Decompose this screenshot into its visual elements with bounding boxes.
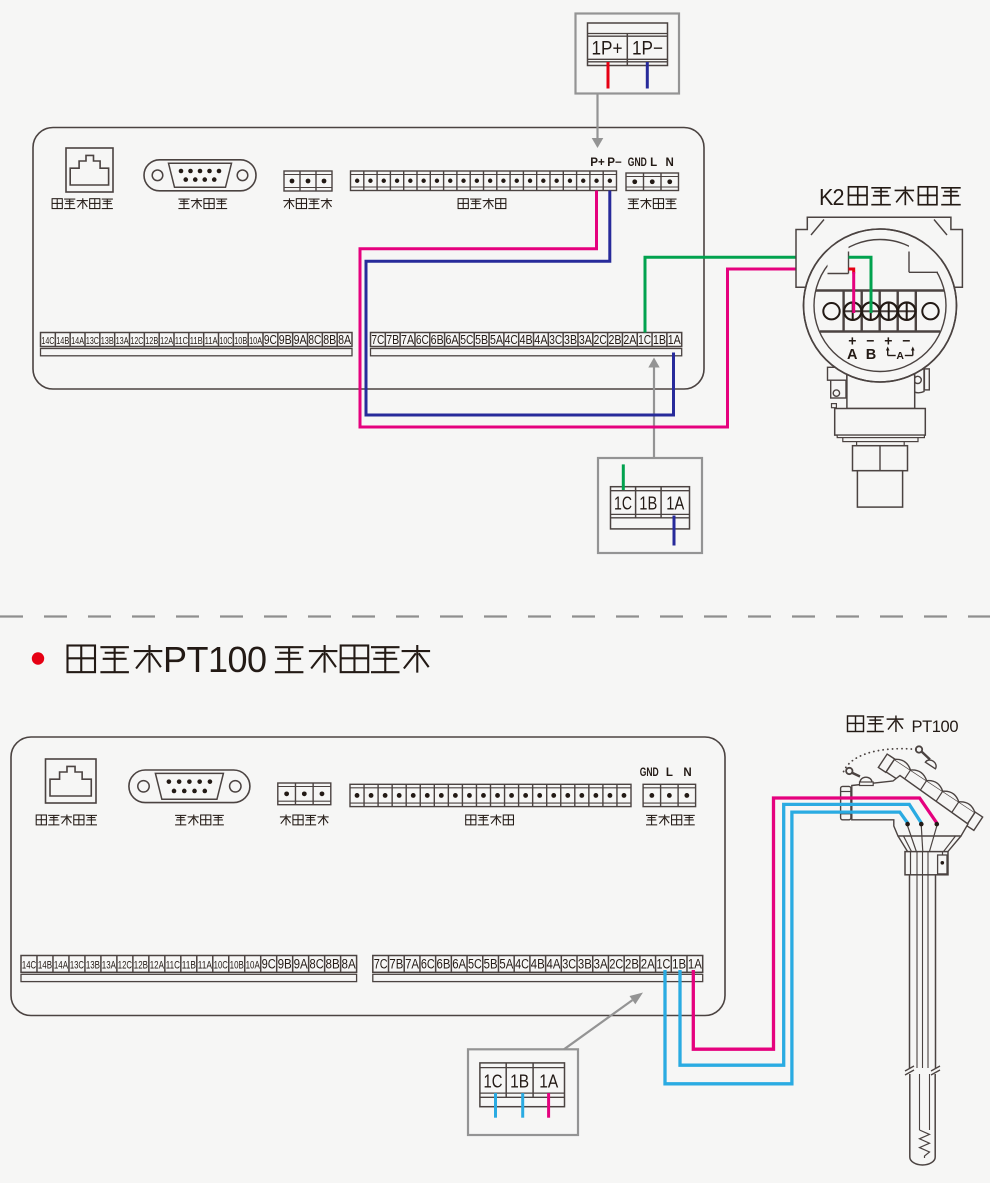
svg-text:14A: 14A [71, 336, 84, 347]
svg-text:L: L [650, 157, 657, 169]
svg-text:P+: P+ [590, 157, 605, 169]
svg-text:1P+: 1P+ [592, 39, 623, 60]
svg-text:2C: 2C [594, 333, 607, 347]
svg-text:PT100: PT100 [163, 639, 267, 680]
svg-text:3A: 3A [579, 333, 593, 347]
svg-text:12C: 12C [118, 960, 132, 972]
svg-text:6B: 6B [431, 333, 444, 347]
svg-text:1B: 1B [510, 1072, 529, 1092]
svg-text:5C: 5C [468, 957, 482, 972]
svg-text:N: N [666, 157, 674, 169]
svg-text:2B: 2B [609, 333, 622, 347]
svg-text:4B: 4B [531, 957, 545, 972]
svg-text:N: N [683, 767, 691, 779]
svg-text:7B: 7B [389, 957, 403, 972]
svg-text:K2: K2 [819, 184, 844, 210]
svg-text:4B: 4B [520, 333, 533, 347]
svg-text:7A: 7A [401, 333, 415, 347]
svg-text:13A: 13A [116, 336, 129, 347]
svg-text:14C: 14C [22, 960, 36, 972]
svg-text:B: B [866, 347, 876, 363]
svg-text:9B: 9B [279, 333, 292, 347]
svg-text:7A: 7A [405, 957, 419, 972]
svg-text:3B: 3B [578, 957, 592, 972]
svg-text:10B: 10B [230, 960, 244, 972]
svg-text:2A: 2A [623, 333, 637, 347]
svg-text:7C: 7C [374, 957, 388, 972]
svg-text:8B: 8B [326, 957, 340, 972]
svg-text:9C: 9C [264, 333, 277, 347]
svg-text:9A: 9A [294, 333, 308, 347]
svg-text:A: A [896, 350, 904, 362]
svg-text:11B: 11B [190, 336, 203, 347]
svg-text:13C: 13C [70, 960, 84, 972]
svg-text:1C: 1C [614, 494, 632, 514]
svg-text:12A: 12A [150, 960, 165, 972]
svg-text:13B: 13B [86, 960, 100, 972]
svg-text:1A: 1A [666, 494, 684, 514]
svg-text:11A: 11A [198, 960, 213, 972]
svg-text:3C: 3C [562, 957, 576, 972]
svg-text:3A: 3A [594, 957, 608, 972]
svg-text:5B: 5B [475, 333, 488, 347]
svg-text:A: A [847, 347, 858, 363]
svg-text:10C: 10C [214, 960, 228, 972]
svg-text:4A: 4A [547, 957, 561, 972]
svg-text:1A: 1A [539, 1072, 558, 1092]
svg-text:L: L [666, 767, 673, 779]
svg-text:13B: 13B [101, 336, 114, 347]
svg-text:14C: 14C [41, 336, 54, 347]
svg-text:14B: 14B [38, 960, 52, 972]
svg-text:11B: 11B [182, 960, 196, 972]
svg-text:10A: 10A [249, 336, 262, 347]
svg-text:8B: 8B [323, 333, 336, 347]
svg-text:5C: 5C [460, 333, 473, 347]
svg-text:4C: 4C [505, 333, 518, 347]
svg-text:11A: 11A [205, 336, 218, 347]
svg-text:3B: 3B [564, 333, 577, 347]
svg-text:7C: 7C [371, 333, 384, 347]
svg-text:6C: 6C [416, 333, 429, 347]
svg-text:GND: GND [640, 767, 659, 779]
svg-text:−: − [902, 333, 910, 349]
svg-text:1A: 1A [668, 333, 682, 347]
svg-text:2A: 2A [641, 957, 655, 972]
svg-text:1C: 1C [638, 333, 651, 347]
svg-text:9B: 9B [278, 957, 292, 972]
svg-text:5A: 5A [490, 333, 504, 347]
svg-text:2B: 2B [625, 957, 639, 972]
svg-text:1P−: 1P− [632, 39, 663, 60]
svg-text:8A: 8A [342, 957, 356, 972]
svg-text:10B: 10B [234, 336, 247, 347]
svg-text:1B: 1B [653, 333, 666, 347]
svg-text:6A: 6A [445, 333, 459, 347]
svg-text:12B: 12B [145, 336, 158, 347]
svg-text:10A: 10A [246, 960, 261, 972]
svg-text:6B: 6B [437, 957, 451, 972]
svg-text:7B: 7B [386, 333, 399, 347]
svg-text:11C: 11C [166, 960, 180, 972]
svg-text:6A: 6A [452, 957, 466, 972]
svg-text:14A: 14A [54, 960, 69, 972]
svg-text:+: + [884, 333, 892, 349]
svg-text:5B: 5B [484, 957, 498, 972]
svg-text:1B: 1B [639, 494, 657, 514]
svg-text:P−: P− [607, 157, 622, 169]
svg-text:8A: 8A [338, 333, 352, 347]
svg-text:PT100: PT100 [912, 718, 959, 736]
svg-text:1C: 1C [484, 1072, 503, 1092]
svg-text:11C: 11C [175, 336, 188, 347]
svg-text:1B: 1B [672, 957, 686, 972]
svg-text:8C: 8C [310, 957, 324, 972]
svg-text:14B: 14B [56, 336, 69, 347]
svg-text:3C: 3C [549, 333, 562, 347]
svg-text:6C: 6C [421, 957, 435, 972]
svg-text:9C: 9C [262, 957, 276, 972]
svg-text:10C: 10C [219, 336, 232, 347]
svg-text:4C: 4C [515, 957, 529, 972]
svg-text:4A: 4A [534, 333, 548, 347]
svg-text:12B: 12B [134, 960, 148, 972]
svg-text:8C: 8C [308, 333, 321, 347]
svg-text:12C: 12C [130, 336, 143, 347]
svg-text:9A: 9A [294, 957, 308, 972]
svg-text:13C: 13C [86, 336, 99, 347]
svg-text:1C: 1C [656, 957, 670, 972]
svg-text:5A: 5A [499, 957, 513, 972]
svg-text:1A: 1A [688, 957, 702, 972]
svg-text:GND: GND [628, 157, 647, 169]
svg-text:13A: 13A [102, 960, 117, 972]
svg-text:2C: 2C [609, 957, 623, 972]
svg-text:12A: 12A [160, 336, 173, 347]
